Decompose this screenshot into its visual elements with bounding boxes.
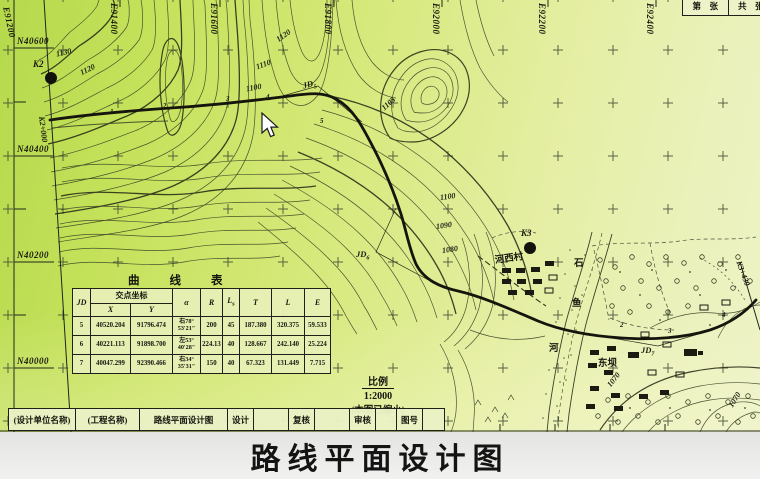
grid-label-n40000: N40000 [17,357,49,366]
review-name-cell [376,409,397,430]
col-header-coord: 交点坐标 [91,289,173,304]
k3-label: K3 [521,229,532,238]
stake-r3: 3 [668,328,672,335]
sheet-number-cell: 第 张 [683,0,729,15]
k2-label: K2 [33,60,44,69]
grid-label-e92000: E92000 [431,3,440,35]
plan-map: E91200 E91400 E91600 E91800 E92000 E9220… [0,0,760,432]
grid-label-e92400: E92400 [645,3,654,35]
grid-label-n40600: N40600 [17,37,49,46]
river-name-char-yu: 鱼 [572,300,582,310]
col-header-jd: JD [73,289,91,317]
cell-e: 25.224 [305,336,331,355]
cell-alpha: 左53°40′28″ [173,336,201,355]
cell-e: 7.715 [305,355,331,374]
cell-t: 128.667 [240,336,272,355]
stake-4: 4 [266,94,270,101]
cell-t: 187.380 [240,317,272,336]
title-block: (设计单位名称) (工程名称) 路线平面设计图 设计 复核 审核 图号 [8,408,445,431]
curve-table-title: 曲线表 [128,272,253,288]
table-row-jd5: 5 40520.204 91796.474 右78°53′21″ 200 45 … [73,317,331,336]
cell-jd: 6 [73,336,91,355]
stake-r4: 4 [722,312,726,319]
table-row-jd7: 7 40047.299 92390.466 右34°35′31″ 150 40 … [73,355,331,374]
check-label-cell: 复核 [289,409,315,430]
cell-t: 67.323 [240,355,272,374]
grid-label-e91800: E91800 [323,3,332,35]
cell-l: 242.140 [272,336,305,355]
review-label-cell: 审核 [350,409,376,430]
cell-e: 59.533 [305,317,331,336]
village-dongba-label: 东坝 [598,360,617,370]
col-header-x: X [91,304,131,317]
col-header-alpha: α [173,289,201,317]
cell-y: 92390.466 [131,355,173,374]
check-name-cell [315,409,350,430]
grid-label-e91600: E91600 [209,3,218,35]
screenshot: E91200 E91400 E91600 E91800 E92000 E9220… [0,0,760,479]
drawing-no-value-cell [423,409,444,430]
table-row-jd6: 6 40221.113 91898.700 左53°40′28″ 224.13 … [73,336,331,355]
design-name-cell [254,409,289,430]
cell-x: 40520.204 [91,317,131,336]
stake-3: 3 [226,96,230,103]
cell-x: 40221.113 [91,336,131,355]
cell-l: 320.375 [272,317,305,336]
cell-ls: 40 [223,355,240,374]
sheet-total-cell: 共 张 [729,0,760,15]
cell-ls: 45 [223,317,240,336]
stake-5: 5 [320,118,324,125]
stake-2: 2 [163,103,167,110]
river-name-char-he: 河 [549,345,559,355]
jd7-label: JD7 [641,346,654,358]
col-header-t: T [240,289,272,317]
col-header-l: L [272,289,305,317]
grid-label-n40400: N40400 [17,145,49,154]
stake-r2: 2 [620,322,624,329]
cell-y: 91898.700 [131,336,173,355]
mouse-cursor [260,112,284,142]
k3-kilometre-post [524,242,536,254]
cell-alpha: 右34°35′31″ [173,355,201,374]
stake-1: 1 [110,109,114,116]
k2-kilometre-post [45,72,57,84]
cell-alpha: 右78°53′21″ [173,317,201,336]
design-unit-cell: (设计单位名称) [9,409,76,430]
cell-y: 91796.474 [131,317,173,336]
river-name-char-shi: 石 [574,260,584,270]
cell-x: 40047.299 [91,355,131,374]
jd6-label: JD6 [356,250,369,262]
drawing-title-cell: 路线平面设计图 [140,409,228,430]
cell-jd: 5 [73,317,91,336]
col-header-r: R [201,289,223,317]
grid-label-e92200: E92200 [537,3,546,35]
curve-table: JD 交点坐标 α R Ls T L E X Y 5 40520.204 917… [72,288,331,374]
col-header-e: E [305,289,331,317]
drawing-no-label-cell: 图号 [397,409,423,430]
col-header-y: Y [131,304,173,317]
cell-r: 150 [201,355,223,374]
caption-strip: 路线平面设计图 [0,432,760,479]
grid-label-n40200: N40200 [17,251,49,260]
drawing-caption: 路线平面设计图 [251,434,510,478]
cell-r: 200 [201,317,223,336]
cell-jd: 7 [73,355,91,374]
grid-label-e91400: E91400 [109,3,118,35]
cell-r: 224.13 [201,336,223,355]
scale-label: 比例 [362,373,394,389]
project-name-cell: (工程名称) [76,409,140,430]
col-header-ls: Ls [223,289,240,317]
scale-ratio: 1:2000 [330,391,426,402]
cell-l: 131.449 [272,355,305,374]
sheet-number-box: 第 张 共 张 [682,0,760,16]
design-label-cell: 设计 [228,409,254,430]
cell-ls: 40 [223,336,240,355]
